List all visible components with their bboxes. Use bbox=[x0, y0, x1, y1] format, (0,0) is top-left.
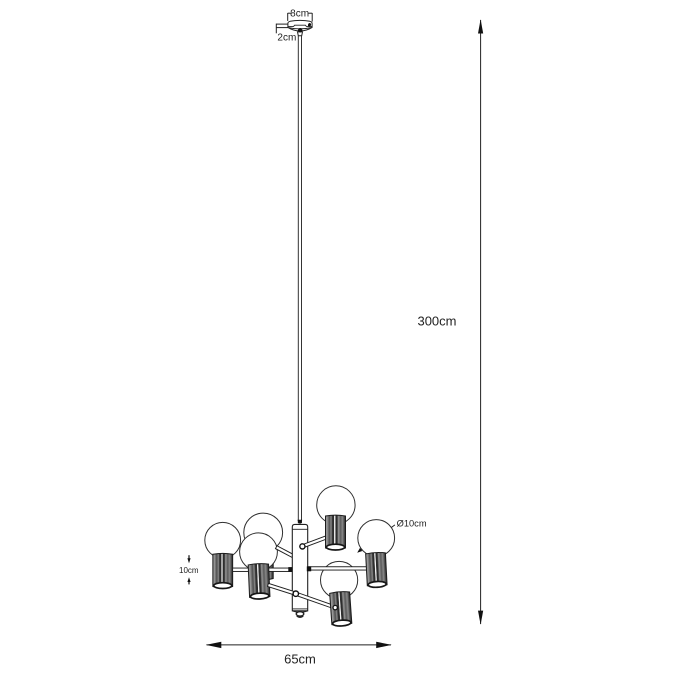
svg-text:300cm: 300cm bbox=[417, 313, 456, 328]
svg-text:Ø10cm: Ø10cm bbox=[397, 518, 427, 528]
svg-text:10cm: 10cm bbox=[179, 566, 199, 575]
svg-text:8cm: 8cm bbox=[290, 9, 309, 20]
svg-text:2cm: 2cm bbox=[277, 32, 296, 43]
svg-text:65cm: 65cm bbox=[284, 652, 316, 667]
